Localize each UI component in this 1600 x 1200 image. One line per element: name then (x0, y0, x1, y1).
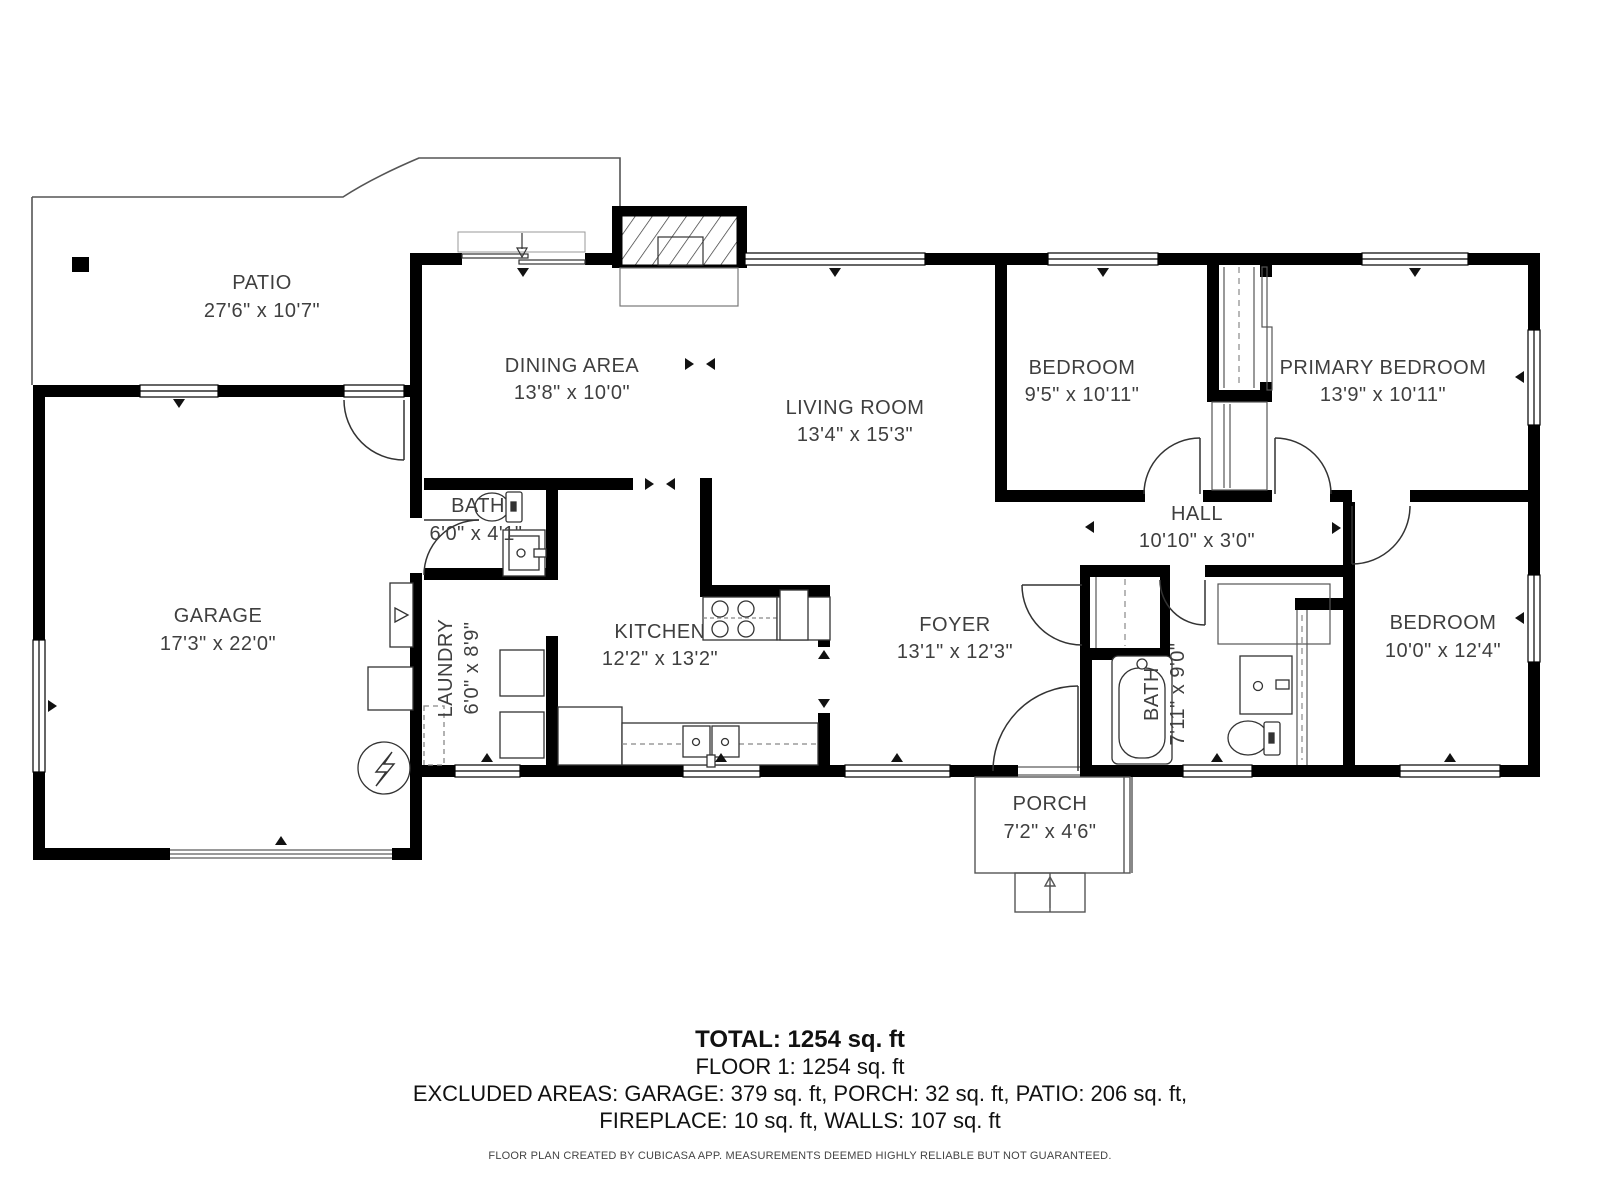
area-summary: TOTAL: 1254 sq. ft FLOOR 1: 1254 sq. ft … (0, 1026, 1600, 1162)
patio-post (72, 257, 89, 272)
door-bedroom1 (1144, 438, 1200, 494)
walls (33, 253, 1540, 860)
garage-cabinet (368, 667, 413, 710)
window (683, 765, 760, 777)
room-label-garage: GARAGE (174, 605, 263, 627)
room-label-bedroom1: BEDROOM (1029, 357, 1136, 379)
door-garage-patio (344, 400, 404, 460)
room-dims-laundry: 6'0" x 8'9" (461, 622, 483, 715)
room-dims-dining: 13'8" x 10'0" (514, 382, 630, 404)
room-dims-garage: 17'3" x 22'0" (160, 633, 276, 655)
room-dims-porch: 7'2" x 4'6" (1004, 821, 1097, 843)
window (1400, 765, 1500, 777)
room-dims-bedroom1: 9'5" x 10'11" (1025, 384, 1140, 406)
room-label-living: LIVING ROOM (786, 397, 925, 419)
room-label-kitchen: KITCHEN (614, 621, 705, 643)
patio-outline (32, 158, 620, 385)
room-dims-bath1: 6'0" x 4'1" (430, 523, 523, 545)
door-foyer-closet (1022, 585, 1082, 645)
room-dims-hall: 10'10" x 3'0" (1139, 530, 1255, 552)
garage-cabinet (390, 583, 413, 647)
window (140, 385, 218, 397)
room-dims-foyer: 13'1" x 12'3" (897, 641, 1013, 663)
door-primary-bedroom (1275, 438, 1331, 494)
washer-icon (500, 650, 544, 696)
counter (780, 590, 808, 640)
water-heater-icon (358, 742, 410, 794)
excluded-areas-line2: FIREPLACE: 10 sq. ft, WALLS: 107 sq. ft (0, 1107, 1600, 1134)
window (745, 253, 925, 265)
excluded-areas-line1: EXCLUDED AREAS: GARAGE: 379 sq. ft, PORC… (0, 1080, 1600, 1107)
window (1528, 330, 1540, 425)
room-dims-living: 13'4" x 15'3" (797, 424, 913, 446)
room-dims-primary-bedroom: 13'9" x 10'11" (1320, 384, 1446, 406)
window (33, 640, 45, 772)
door-entry (993, 686, 1078, 771)
floor-plan-page: PATIO 27'6" x 10'7" DINING AREA 13'8" x … (0, 0, 1600, 1200)
garage-door-icon (170, 848, 392, 860)
room-label-dining: DINING AREA (505, 355, 640, 377)
room-dims-bedroom2: 10'0" x 12'4" (1385, 640, 1501, 662)
window (455, 765, 520, 777)
room-dims-patio: 27'6" x 10'7" (204, 300, 320, 322)
fireplace-icon (612, 206, 747, 306)
window (1048, 253, 1158, 265)
room-label-hall: HALL (1171, 503, 1223, 525)
room-label-patio: PATIO (232, 272, 292, 294)
total-area: TOTAL: 1254 sq. ft (0, 1026, 1600, 1053)
windows (33, 253, 1540, 777)
dryer-icon (500, 712, 544, 758)
floor1-area: FLOOR 1: 1254 sq. ft (0, 1053, 1600, 1080)
sink-icon (1240, 656, 1292, 714)
window (1362, 253, 1468, 265)
sliding-door-icon (458, 232, 585, 265)
window (845, 765, 950, 777)
window (1183, 765, 1252, 777)
room-label-foyer: FOYER (919, 614, 990, 636)
floor-plan: PATIO 27'6" x 10'7" DINING AREA 13'8" x … (0, 0, 1600, 1200)
room-dims-bath2: 7'11" x 9'0" (1167, 642, 1189, 745)
room-label-porch: PORCH (1013, 793, 1088, 815)
door-bedroom2 (1352, 506, 1410, 564)
room-label-bedroom2: BEDROOM (1390, 612, 1497, 634)
room-dims-kitchen: 12'2" x 13'2" (602, 648, 718, 670)
room-label-primary-bedroom: PRIMARY BEDROOM (1280, 357, 1487, 379)
disclaimer-text: FLOOR PLAN CREATED BY CUBICASA APP. MEAS… (0, 1150, 1600, 1162)
fridge-icon (558, 707, 622, 765)
toilet-icon (1228, 721, 1280, 755)
room-label-bath2: BATH (1141, 667, 1163, 721)
window (1528, 575, 1540, 662)
room-label-bath1: BATH (451, 495, 505, 517)
entry-opening (1018, 765, 1080, 777)
room-label-laundry: LAUNDRY (435, 619, 457, 718)
window (344, 385, 404, 397)
stove-icon (703, 597, 777, 640)
